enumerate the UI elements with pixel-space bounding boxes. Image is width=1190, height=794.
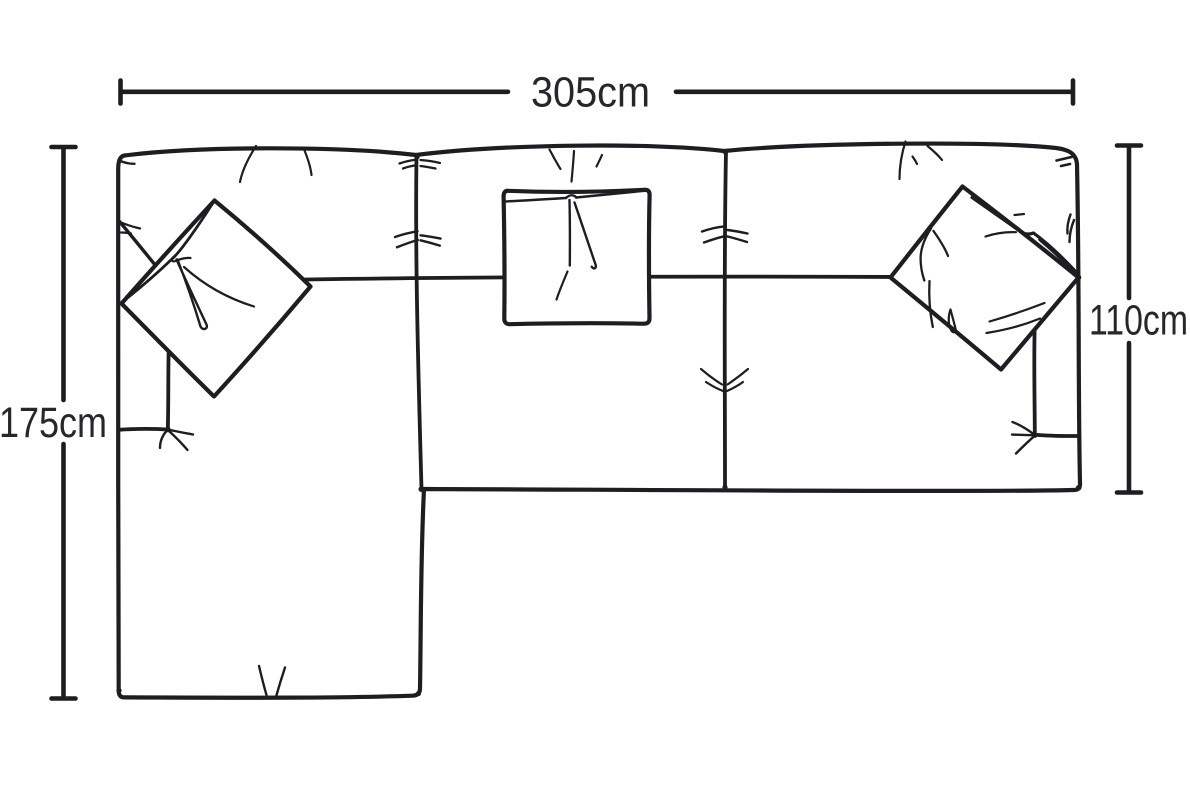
svg-text:305cm: 305cm	[531, 69, 650, 117]
svg-text:110cm: 110cm	[1089, 297, 1188, 345]
svg-text:175cm: 175cm	[0, 399, 107, 447]
